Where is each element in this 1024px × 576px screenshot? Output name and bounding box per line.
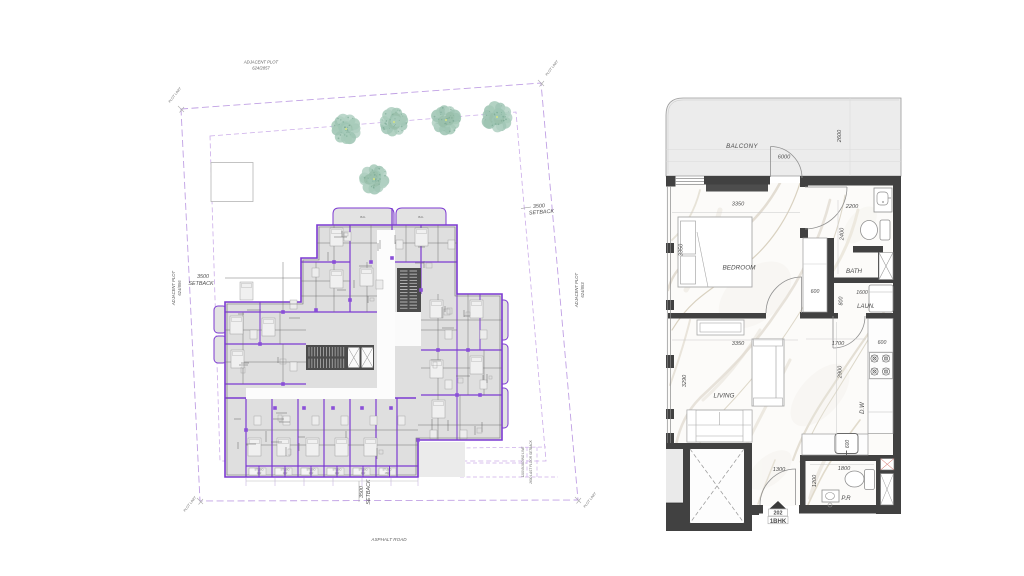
svg-text:3350: 3350 — [732, 202, 745, 208]
svg-text:D.W: D.W — [860, 401, 866, 414]
svg-text:2600 LAST FLOOR SETBACK: 2600 LAST FLOOR SETBACK — [529, 439, 533, 484]
svg-text:1100 BUILDING LINE: 1100 BUILDING LINE — [521, 446, 525, 478]
svg-text:LAUN.: LAUN. — [857, 304, 875, 310]
svg-text:SETBACK: SETBACK — [366, 479, 372, 505]
svg-text:3350: 3350 — [679, 243, 685, 256]
svg-text:3290: 3290 — [682, 374, 688, 387]
svg-text:BATH: BATH — [846, 268, 863, 275]
svg-text:3350: 3350 — [732, 341, 745, 347]
svg-text:600: 600 — [845, 440, 851, 449]
svg-text:600: 600 — [811, 289, 820, 295]
svg-text:1800: 1800 — [838, 466, 851, 472]
svg-text:1BHK: 1BHK — [770, 519, 787, 525]
svg-text:LIVING: LIVING — [714, 393, 735, 400]
svg-text:624/853: 624/853 — [580, 282, 585, 298]
svg-text:1200: 1200 — [812, 474, 818, 487]
svg-text:ASPHALT ROAD: ASPHALT ROAD — [370, 537, 407, 542]
svg-text:3500: 3500 — [359, 486, 365, 498]
svg-text:SETBACK: SETBACK — [188, 281, 214, 287]
svg-text:800: 800 — [839, 297, 845, 306]
svg-text:PLOT LIMIT: PLOT LIMIT — [583, 491, 598, 509]
svg-text:2600: 2600 — [837, 129, 843, 143]
svg-text:1300: 1300 — [773, 467, 786, 473]
svg-text:BAL: BAL — [418, 215, 424, 219]
svg-text:ADJACENT PLOT: ADJACENT PLOT — [171, 270, 176, 306]
svg-text:SETBACK: SETBACK — [529, 209, 555, 217]
svg-text:624/856: 624/856 — [177, 280, 182, 296]
svg-text:1700: 1700 — [832, 341, 845, 347]
svg-text:ADJACENT PLOT: ADJACENT PLOT — [243, 60, 279, 65]
svg-text:P.R: P.R — [841, 496, 851, 502]
svg-text:3500: 3500 — [197, 274, 209, 280]
svg-text:BALCONY: BALCONY — [726, 143, 758, 150]
svg-text:6000: 6000 — [778, 155, 791, 161]
svg-text:202: 202 — [774, 511, 783, 517]
svg-text:PLOT LIMIT: PLOT LIMIT — [545, 59, 560, 77]
svg-text:ADJACENT PLOT: ADJACENT PLOT — [574, 272, 579, 308]
svg-text:BEDROOM: BEDROOM — [722, 265, 756, 272]
svg-text:PLOT LIMIT: PLOT LIMIT — [183, 495, 198, 513]
svg-text:1BR: 1BR — [385, 472, 390, 475]
svg-text:2200: 2200 — [845, 204, 859, 210]
svg-text:624/2857: 624/2857 — [252, 66, 270, 71]
svg-text:PLOT LIMIT: PLOT LIMIT — [168, 86, 183, 104]
svg-text:BAL: BAL — [360, 215, 366, 219]
svg-text:2400: 2400 — [840, 227, 846, 241]
svg-text:2900: 2900 — [838, 365, 844, 379]
svg-text:1600: 1600 — [856, 290, 868, 296]
svg-text:600: 600 — [878, 340, 887, 346]
